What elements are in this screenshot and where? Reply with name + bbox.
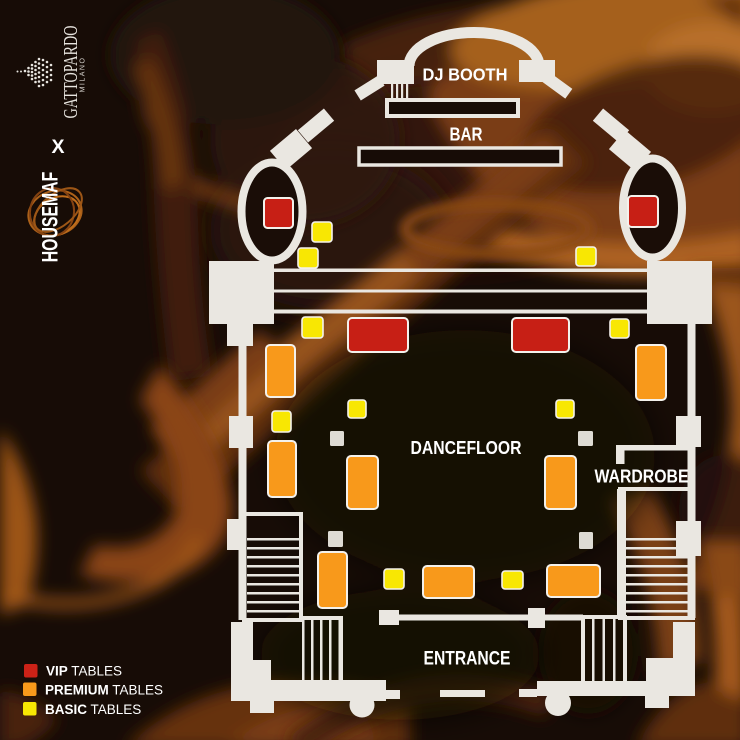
svg-text:BAR: BAR [450, 125, 483, 145]
svg-text:ENTRANCE: ENTRANCE [424, 649, 511, 670]
svg-text:PREMIUM TABLES: PREMIUM TABLES [45, 683, 163, 698]
svg-text:MILANO: MILANO [80, 57, 87, 93]
svg-text:DJ BOOTH: DJ BOOTH [423, 65, 508, 85]
svg-text:WARDROBE: WARDROBE [595, 466, 689, 487]
svg-text:GATTOPARDO: GATTOPARDO [60, 25, 82, 118]
svg-text:VIP TABLES: VIP TABLES [46, 664, 122, 679]
svg-text:X: X [51, 136, 64, 158]
svg-text:HOUSEMAF: HOUSEMAF [39, 172, 63, 263]
svg-text:DANCEFLOOR: DANCEFLOOR [411, 438, 522, 458]
svg-text:BASIC TABLES: BASIC TABLES [45, 702, 141, 717]
